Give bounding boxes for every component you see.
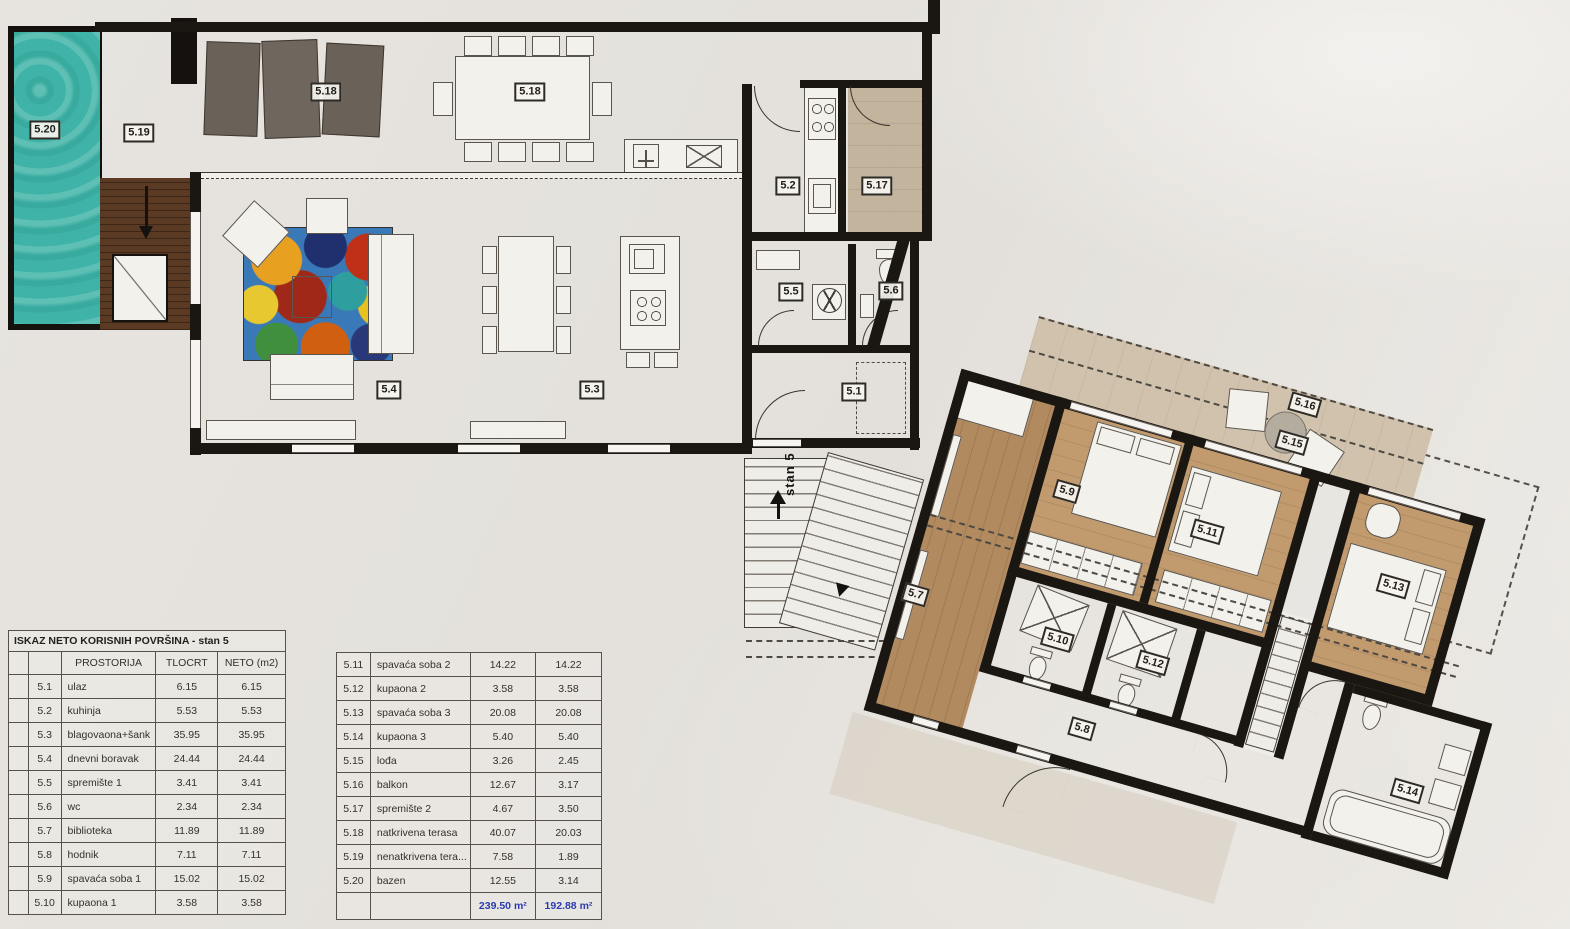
coffee-table — [292, 276, 332, 318]
value-cell: 5.5 — [28, 771, 61, 795]
wall — [848, 244, 856, 350]
wall — [838, 86, 846, 236]
table-row: 5.11spavaća soba 214.2214.22 — [337, 653, 602, 677]
value-cell: 5.17 — [337, 797, 371, 821]
room-name-cell: nenatkrivena tera... — [370, 845, 470, 869]
dining-chair — [556, 286, 571, 314]
value-cell — [9, 843, 29, 867]
value-cell: 6.15 — [218, 675, 286, 699]
terrace-grill — [686, 145, 722, 168]
window — [458, 444, 520, 453]
value-cell: 5.11 — [337, 653, 371, 677]
table-row: 5.7biblioteka11.8911.89 — [9, 819, 286, 843]
value-cell — [9, 819, 29, 843]
pool — [8, 26, 102, 330]
value-cell: 5.20 — [337, 869, 371, 893]
room-name-cell: ulaz — [61, 675, 156, 699]
table-row: 5.9spavaća soba 115.0215.02 — [9, 867, 286, 891]
terrace-chair — [433, 82, 453, 116]
value-cell: 5.8 — [28, 843, 61, 867]
value-cell: 5.40 — [535, 725, 601, 749]
dining-chair — [482, 246, 497, 274]
value-cell — [9, 771, 29, 795]
kitchen-hob — [808, 98, 836, 140]
value-cell: 5.1 — [28, 675, 61, 699]
value-cell: 3.58 — [535, 677, 601, 701]
room-name-cell: dnevni boravak — [61, 747, 156, 771]
side-table — [306, 198, 348, 234]
value-cell: 14.22 — [535, 653, 601, 677]
terrace-chair — [464, 142, 492, 162]
room-name-cell: kuhinja — [61, 699, 156, 723]
value-cell: 20.08 — [535, 701, 601, 725]
value-cell: 5.53 — [218, 699, 286, 723]
window — [292, 444, 354, 453]
value-cell — [9, 891, 29, 915]
value-cell: 3.41 — [156, 771, 218, 795]
value-cell: 12.67 — [470, 773, 535, 797]
terrace-sink-faucet-bar — [638, 160, 654, 162]
value-cell: 5.14 — [337, 725, 371, 749]
table-row: 5.2kuhinja5.535.53 — [9, 699, 286, 723]
value-cell: 5.7 — [28, 819, 61, 843]
room-name-cell: natkrivena terasa — [370, 821, 470, 845]
value-cell: 7.11 — [218, 843, 286, 867]
room-name-cell: kupaona 3 — [370, 725, 470, 749]
value-cell: 5.9 — [28, 867, 61, 891]
room-name-cell: spavaća soba 1 — [61, 867, 156, 891]
room-name-cell: spremište 2 — [370, 797, 470, 821]
island-hob — [630, 290, 666, 326]
table-title: ISKAZ NETO KORISNIH POVRŠINA - stan 5 — [9, 631, 286, 652]
entrance-arrow-stem — [777, 503, 780, 519]
window — [190, 340, 201, 428]
room-label-5-5: 5.5 — [778, 283, 803, 302]
floorplan-photo: stan 5 5.205.195.185.185.25.175.55.65.45… — [0, 0, 1570, 929]
table-row: 5.5spremište 13.413.41 — [9, 771, 286, 795]
value-cell: 1.89 — [535, 845, 601, 869]
dining-chair — [556, 246, 571, 274]
value-cell: 35.95 — [156, 723, 218, 747]
value-cell: 3.17 — [535, 773, 601, 797]
value-cell: 5.3 — [28, 723, 61, 747]
value-cell: 4.67 — [470, 797, 535, 821]
terrace-chair — [532, 142, 560, 162]
value-cell: 5.6 — [28, 795, 61, 819]
value-cell: 5.40 — [470, 725, 535, 749]
value-cell — [9, 747, 29, 771]
dining-chair — [556, 326, 571, 354]
value-cell: 7.11 — [156, 843, 218, 867]
value-cell: 5.4 — [28, 747, 61, 771]
value-cell: 14.22 — [470, 653, 535, 677]
value-cell: 2.34 — [156, 795, 218, 819]
wc-sink — [860, 294, 874, 318]
dining-chair — [482, 326, 497, 354]
balcony-table — [1225, 388, 1269, 432]
totals-empty — [337, 893, 371, 920]
room-label-5-17: 5.17 — [861, 177, 892, 196]
wall — [922, 24, 932, 240]
shelf — [756, 250, 800, 270]
wall — [742, 84, 752, 446]
value-cell — [9, 723, 29, 747]
total-tlocrt: 239.50 m² — [470, 893, 535, 920]
terrace-sink-faucet — [645, 150, 647, 168]
value-cell: 35.95 — [218, 723, 286, 747]
sofa — [368, 234, 414, 354]
value-cell: 5.13 — [337, 701, 371, 725]
table-row: 5.4dnevni boravak24.4424.44 — [9, 747, 286, 771]
table-row: 5.12kupaona 23.583.58 — [337, 677, 602, 701]
value-cell: 11.89 — [156, 819, 218, 843]
island-sink-basin — [634, 249, 654, 269]
terrace-chair — [566, 142, 594, 162]
column-header — [9, 652, 29, 675]
value-cell: 2.34 — [218, 795, 286, 819]
area-table-left: ISKAZ NETO KORISNIH POVRŠINA - stan 5 PR… — [8, 630, 286, 915]
value-cell — [9, 699, 29, 723]
table-row: 5.15lođa3.262.45 — [337, 749, 602, 773]
deck-arrow-icon — [139, 226, 153, 239]
kitchen-sink-basin — [813, 184, 831, 208]
value-cell: 5.19 — [337, 845, 371, 869]
room-label-5-18: 5.18 — [514, 83, 545, 102]
terrace-chair — [464, 36, 492, 56]
tv-sideboard — [206, 420, 356, 440]
table-row: 5.3blagovaona+šank35.9535.95 — [9, 723, 286, 747]
dining-room-floor — [410, 178, 742, 446]
terrace-chair — [498, 142, 526, 162]
window — [608, 444, 670, 453]
value-cell: 24.44 — [156, 747, 218, 771]
dining-chair — [482, 286, 497, 314]
column-header: TLOCRT — [156, 652, 218, 675]
table-row: 5.10kupaona 13.583.58 — [9, 891, 286, 915]
value-cell: 5.2 — [28, 699, 61, 723]
value-cell: 3.58 — [470, 677, 535, 701]
terrace-chair — [566, 36, 594, 56]
table-row: 5.13spavaća soba 320.0820.08 — [337, 701, 602, 725]
table-row: 5.1ulaz6.156.15 — [9, 675, 286, 699]
room-name-cell: lođa — [370, 749, 470, 773]
table-row: 5.14kupaona 35.405.40 — [337, 725, 602, 749]
value-cell: 3.41 — [218, 771, 286, 795]
washing-machine-drum-icon — [817, 288, 842, 313]
sliding-glass-wall — [201, 172, 742, 179]
value-cell: 5.10 — [28, 891, 61, 915]
total-neto: 192.88 m² — [535, 893, 601, 920]
value-cell: 15.02 — [156, 867, 218, 891]
column-header — [28, 652, 61, 675]
table-row: 5.8hodnik7.117.11 — [9, 843, 286, 867]
value-cell: 24.44 — [218, 747, 286, 771]
value-cell: 5.12 — [337, 677, 371, 701]
value-cell: 40.07 — [470, 821, 535, 845]
area-table-right: 5.11spavaća soba 214.2214.225.12kupaona … — [336, 652, 602, 920]
value-cell: 3.58 — [218, 891, 286, 915]
value-cell — [9, 795, 29, 819]
room-name-cell: wc — [61, 795, 156, 819]
sofa-2 — [270, 354, 354, 400]
room-name-cell: blagovaona+šank — [61, 723, 156, 747]
room-label-5-3: 5.3 — [579, 381, 604, 400]
window — [190, 212, 201, 304]
room-label-5-1: 5.1 — [841, 383, 866, 402]
room-name-cell: spavaća soba 2 — [370, 653, 470, 677]
terrace-chair — [498, 36, 526, 56]
value-cell: 3.14 — [535, 869, 601, 893]
outdoor-shower — [112, 254, 168, 322]
table-row: 5.16balkon12.673.17 — [337, 773, 602, 797]
totals-empty — [370, 893, 470, 920]
value-cell: 2.45 — [535, 749, 601, 773]
room-label-5-18: 5.18 — [310, 83, 341, 102]
value-cell: 3.50 — [535, 797, 601, 821]
column-header: NETO (m2) — [218, 652, 286, 675]
deck-arrow-stem — [145, 186, 148, 226]
value-cell: 6.15 — [156, 675, 218, 699]
room-name-cell: hodnik — [61, 843, 156, 867]
wall — [95, 22, 938, 32]
value-cell: 7.58 — [470, 845, 535, 869]
value-cell — [9, 867, 29, 891]
dining-table — [498, 236, 554, 352]
room-name-cell: bazen — [370, 869, 470, 893]
bar-stool — [626, 352, 650, 368]
room-name-cell: spremište 1 — [61, 771, 156, 795]
unit-entrance-label: stan 5 — [782, 430, 802, 496]
room-label-5-2: 5.2 — [775, 177, 800, 196]
terrace-chair — [592, 82, 612, 116]
value-cell: 5.53 — [156, 699, 218, 723]
value-cell: 5.15 — [337, 749, 371, 773]
room-name-cell: spavaća soba 3 — [370, 701, 470, 725]
room-label-5-6: 5.6 — [878, 282, 903, 301]
value-cell — [9, 675, 29, 699]
bar-stool — [654, 352, 678, 368]
value-cell: 11.89 — [218, 819, 286, 843]
table-row: 5.20bazen12.553.14 — [337, 869, 602, 893]
value-cell: 3.26 — [470, 749, 535, 773]
column-header: PROSTORIJA — [61, 652, 156, 675]
room-label-5-20: 5.20 — [29, 121, 60, 140]
room-name-cell: kupaona 2 — [370, 677, 470, 701]
room-name-cell: kupaona 1 — [61, 891, 156, 915]
value-cell: 3.58 — [156, 891, 218, 915]
room-name-cell: balkon — [370, 773, 470, 797]
room-label-5-19: 5.19 — [123, 124, 154, 143]
table-row: 5.18natkrivena terasa40.0720.03 — [337, 821, 602, 845]
value-cell: 5.18 — [337, 821, 371, 845]
table-row: 5.19nenatkrivena tera...7.581.89 — [337, 845, 602, 869]
value-cell: 5.16 — [337, 773, 371, 797]
room-name-cell: biblioteka — [61, 819, 156, 843]
value-cell: 20.08 — [470, 701, 535, 725]
terrace-chair — [532, 36, 560, 56]
value-cell: 12.55 — [470, 869, 535, 893]
sun-lounger — [203, 41, 260, 137]
table-row: 5.17spremište 24.673.50 — [337, 797, 602, 821]
table-row: 5.6wc2.342.34 — [9, 795, 286, 819]
value-cell: 20.03 — [535, 821, 601, 845]
room-label-5-4: 5.4 — [376, 381, 401, 400]
dining-sideboard — [470, 421, 566, 439]
entrance-arrow-icon — [770, 490, 786, 504]
value-cell: 15.02 — [218, 867, 286, 891]
